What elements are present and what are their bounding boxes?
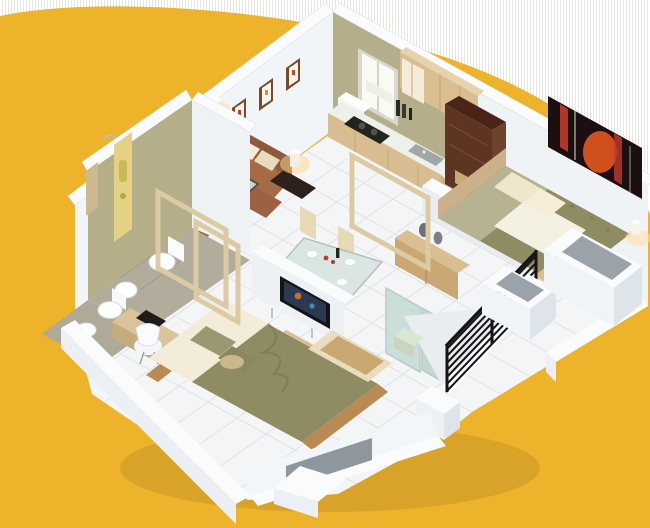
wine-bottle (336, 248, 339, 258)
bolster (220, 355, 244, 369)
mirror-cabinet (86, 162, 98, 216)
floor-plan-3d-render (0, 0, 650, 528)
red-flowers (324, 256, 329, 261)
render-canvas (0, 0, 650, 528)
